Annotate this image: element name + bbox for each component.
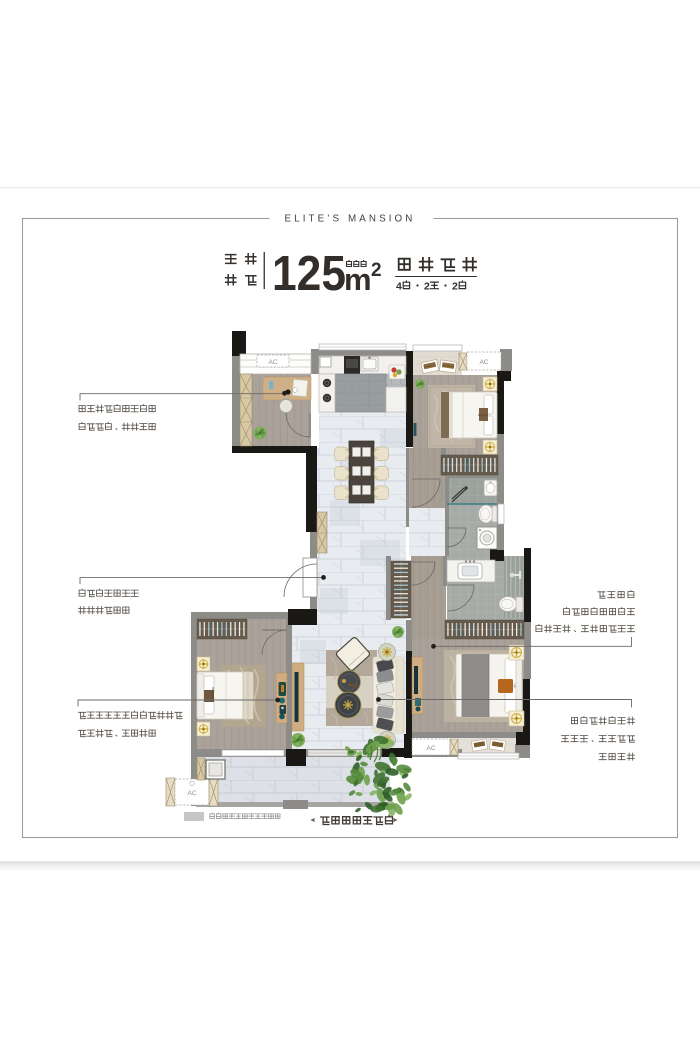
svg-text:AC: AC xyxy=(268,359,277,366)
svg-text:AC: AC xyxy=(479,359,488,366)
svg-text:2: 2 xyxy=(424,281,430,293)
svg-text:ELITE’S MANSION: ELITE’S MANSION xyxy=(285,214,416,225)
svg-text:m: m xyxy=(344,262,372,297)
svg-text:AC: AC xyxy=(426,745,435,752)
svg-text:AC: AC xyxy=(187,790,196,797)
svg-text:125: 125 xyxy=(272,247,346,301)
svg-text:2: 2 xyxy=(371,260,382,281)
svg-text:2: 2 xyxy=(452,281,458,293)
svg-text:4: 4 xyxy=(396,281,402,293)
